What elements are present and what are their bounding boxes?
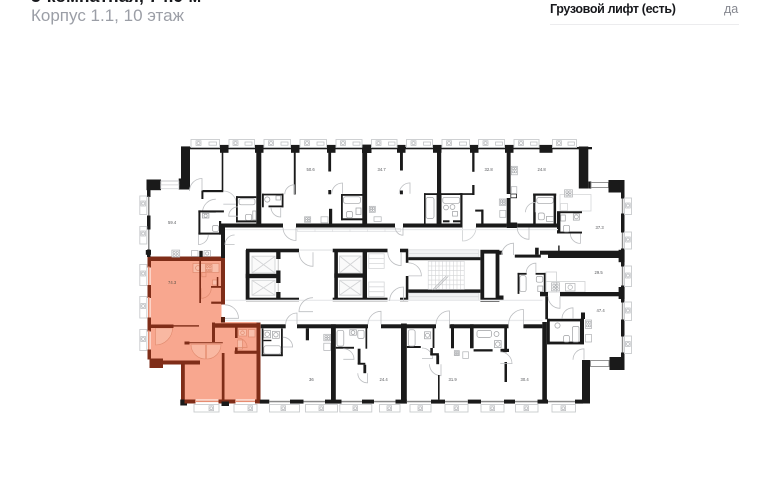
svg-text:37.3: 37.3 [596,225,605,230]
svg-text:32.8: 32.8 [485,167,494,172]
svg-text:30.4: 30.4 [521,377,530,382]
svg-text:24.8: 24.8 [538,167,547,172]
svg-text:36: 36 [309,377,314,382]
svg-text:50.6: 50.6 [307,167,316,172]
svg-text:31.9: 31.9 [449,377,458,382]
svg-text:24.4: 24.4 [380,377,389,382]
svg-text:47.4: 47.4 [597,308,606,313]
svg-text:74.3: 74.3 [168,280,177,285]
svg-text:34.7: 34.7 [378,167,387,172]
svg-text:29.5: 29.5 [595,270,604,275]
svg-text:59.4: 59.4 [168,220,177,225]
